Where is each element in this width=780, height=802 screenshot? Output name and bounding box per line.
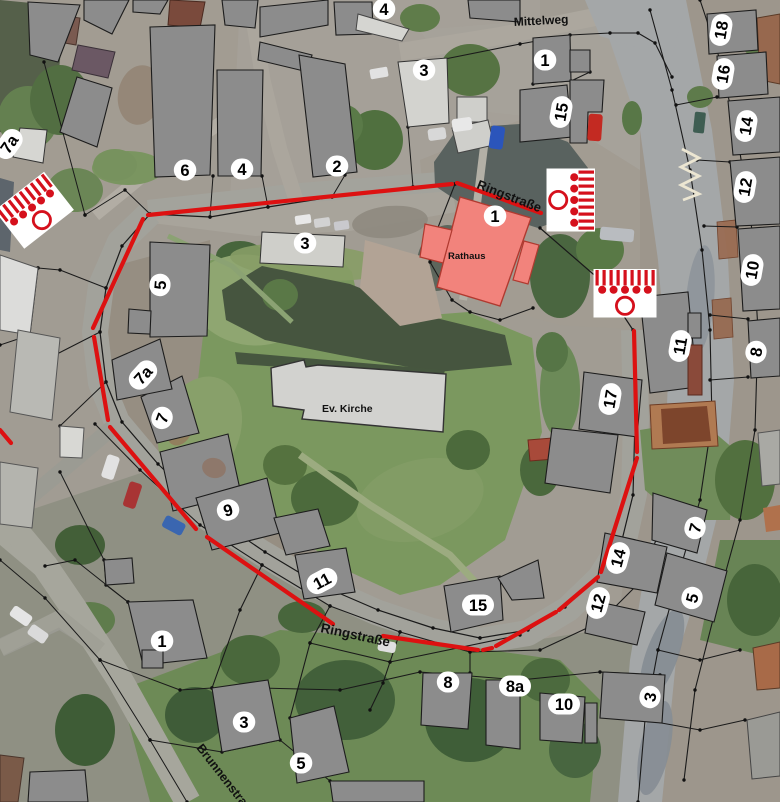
svg-text:10: 10 xyxy=(742,260,763,281)
svg-text:15: 15 xyxy=(551,102,572,123)
svg-text:18: 18 xyxy=(711,20,732,41)
svg-text:4: 4 xyxy=(379,1,389,19)
svg-text:4: 4 xyxy=(237,161,247,179)
svg-text:12: 12 xyxy=(735,177,756,198)
svg-text:8a: 8a xyxy=(506,678,525,696)
svg-text:10: 10 xyxy=(555,696,573,714)
svg-text:3: 3 xyxy=(239,714,248,732)
svg-text:17: 17 xyxy=(600,389,621,410)
svg-text:1: 1 xyxy=(490,208,499,226)
svg-text:11: 11 xyxy=(671,336,692,356)
svg-text:15: 15 xyxy=(469,597,487,615)
svg-text:8: 8 xyxy=(443,674,452,692)
svg-text:1: 1 xyxy=(157,633,166,651)
svg-text:6: 6 xyxy=(180,162,189,180)
svg-text:Ev. Kirche: Ev. Kirche xyxy=(322,403,373,415)
svg-text:3: 3 xyxy=(300,235,309,253)
svg-text:16: 16 xyxy=(713,64,734,85)
svg-text:Mittelweg: Mittelweg xyxy=(513,12,568,29)
svg-text:1: 1 xyxy=(540,52,549,70)
svg-text:3: 3 xyxy=(419,62,428,80)
svg-text:Rathaus: Rathaus xyxy=(448,251,485,262)
svg-text:5: 5 xyxy=(152,280,171,291)
svg-text:5: 5 xyxy=(296,755,305,773)
svg-text:2: 2 xyxy=(332,158,341,176)
